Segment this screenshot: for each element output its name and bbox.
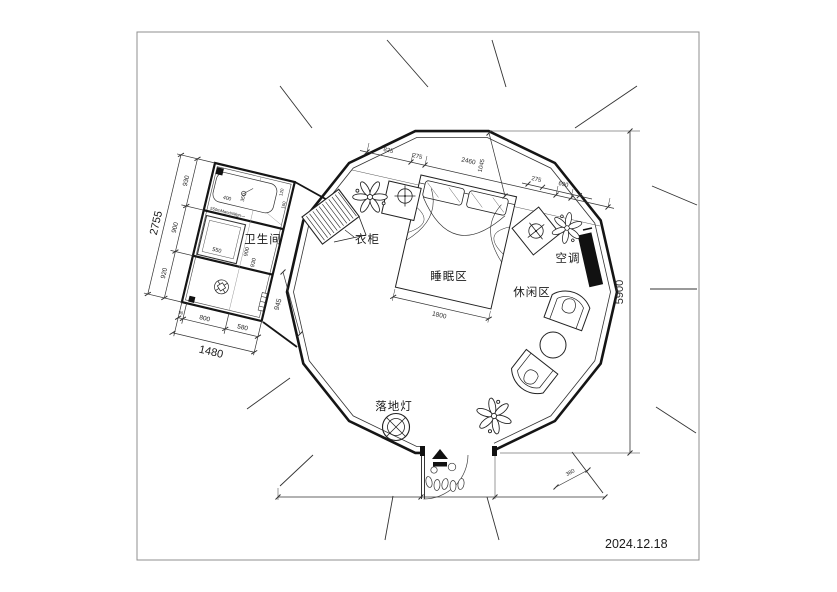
- label-bathroom: 卫生间: [244, 232, 282, 246]
- label-air-conditioner: 空调: [556, 251, 581, 265]
- floor-plan-canvas: 400 350 120 160 550mMandnMgn— 550 900 93…: [0, 0, 837, 592]
- label-sleeping-area: 睡眠区: [430, 270, 468, 283]
- label-leisure-area: 休闲区: [513, 285, 551, 299]
- label-wardrobe: 衣柜: [355, 232, 380, 246]
- date-label: 2024.12.18: [605, 537, 668, 551]
- dim-5900: 5900: [614, 280, 626, 304]
- side-table: [540, 332, 566, 358]
- bedside-table-left: [382, 181, 422, 221]
- floor-plan-page: 400 350 120 160 550mMandnMgn— 550 900 93…: [0, 0, 837, 592]
- shower-base: [197, 215, 245, 263]
- label-floor-lamp: 落地灯: [375, 400, 413, 413]
